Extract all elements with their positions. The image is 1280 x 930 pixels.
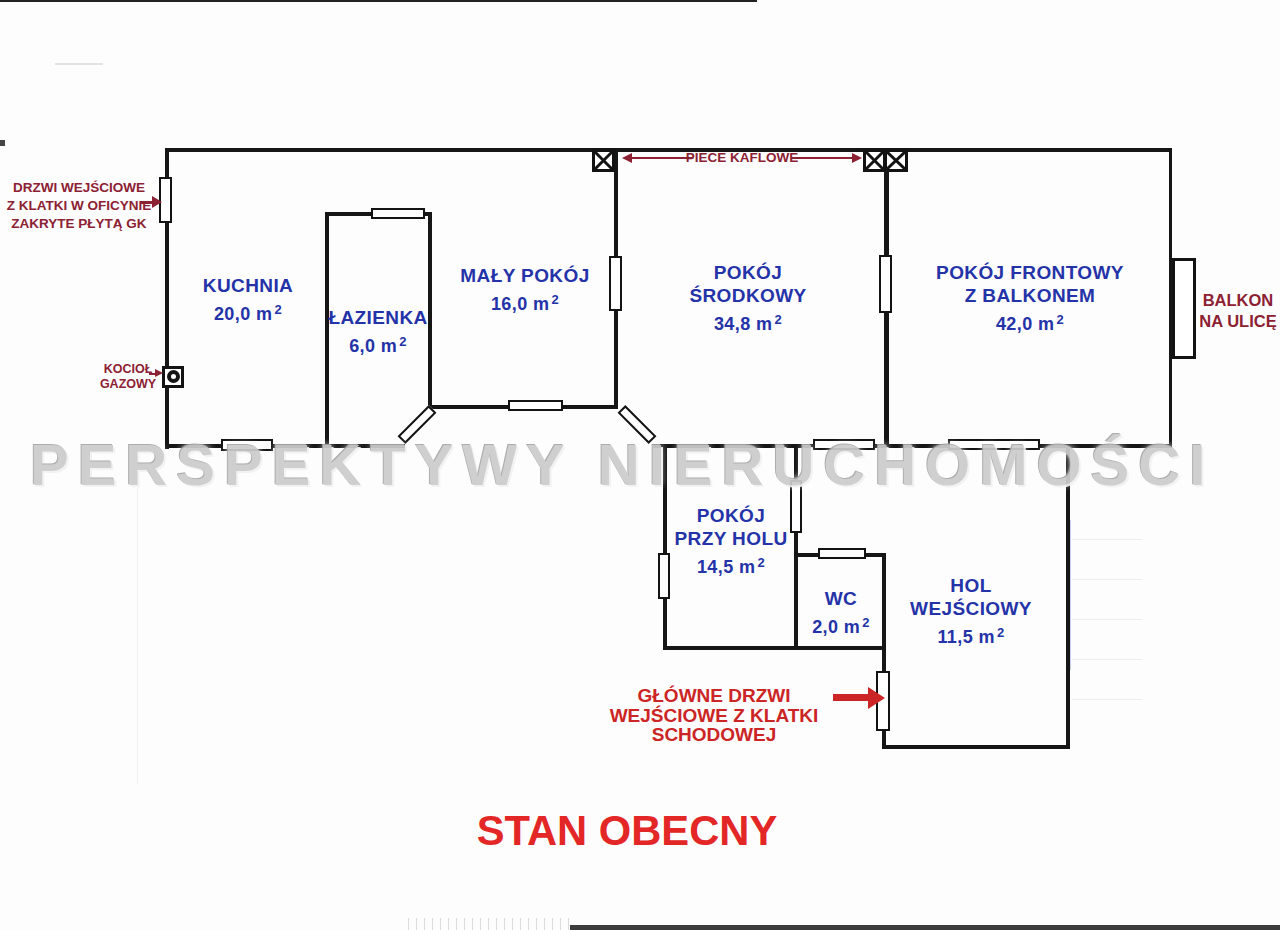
room-area-sup: 2	[774, 312, 782, 327]
room-area: 6,0 m2	[298, 329, 458, 359]
room-area-value: 16,0 m	[491, 294, 549, 314]
scan-artifact-ruling-lines	[1072, 500, 1142, 730]
annotation-balcony: BALKON NA ULICĘ	[1194, 290, 1280, 332]
room-area-sup: 2	[1056, 312, 1064, 327]
room-area-value: 20,0 m	[214, 304, 272, 324]
window-small-room	[508, 400, 563, 411]
gas-boiler-icon	[162, 366, 184, 388]
room-area-sup: 2	[274, 302, 282, 317]
room-name: Z BALKONEM	[930, 284, 1130, 307]
room-label-hol-wejsciowy: HOL WEJŚCIOWY 11,5 m2	[876, 574, 1066, 650]
room-label-pokoj-przy-holu: POKÓJ PRZY HOLU 14,5 m2	[641, 504, 821, 580]
room-area-sup: 2	[551, 292, 559, 307]
gas-boiler-arrowhead-icon	[155, 369, 163, 377]
room-name: ŚRODKOWY	[658, 284, 838, 307]
balcony-outline	[1172, 258, 1196, 359]
room-area-value: 6,0 m	[349, 336, 397, 356]
room-name: MAŁY POKÓJ	[435, 264, 615, 287]
room-name: POKÓJ	[658, 261, 838, 284]
side-entrance-arrowhead-icon	[152, 196, 162, 208]
annotation-line: ZAKRYTE PŁYTĄ GK	[5, 215, 153, 233]
room-area: 16,0 m2	[435, 287, 615, 317]
room-area: 11,5 m2	[876, 620, 1066, 650]
room-area: 34,8 m2	[658, 307, 838, 337]
room-area-sup: 2	[997, 625, 1005, 640]
tile-stoves-right-arrowhead-icon	[852, 153, 862, 163]
room-label-maly-pokoj: MAŁY POKÓJ 16,0 m2	[435, 264, 615, 317]
room-area-value: 11,5 m	[937, 627, 994, 647]
annotation-line: BALKON	[1194, 290, 1280, 311]
room-label-lazienka: ŁAZIENKA 6,0 m2	[298, 306, 458, 359]
annotation-line: DRZWI WEJŚCIOWE	[5, 179, 153, 197]
room-name: ŁAZIENKA	[298, 306, 458, 329]
room-name: HOL	[876, 574, 1066, 597]
tile-stove-icon	[884, 149, 908, 172]
annotation-gas-boiler: KOCIOŁ GAZOWY	[98, 362, 158, 391]
room-name: POKÓJ FRONTOWY	[930, 261, 1130, 284]
main-entrance-arrowhead-icon	[868, 687, 885, 709]
niche-middle-front-wall	[879, 255, 892, 313]
wall-hall-room-bottom	[663, 646, 886, 650]
scan-artifact-bottom-line	[570, 925, 1280, 930]
scan-artifact-bottom-ticks	[408, 918, 573, 930]
room-area: 42,0 m2	[930, 307, 1130, 337]
room-name: PRZY HOLU	[641, 527, 821, 550]
room-name: WEJŚCIOWY	[876, 597, 1066, 620]
main-entrance-arrow	[833, 694, 869, 701]
scan-artifact-top-line	[0, 0, 757, 2]
room-label-pokoj-srodkowy: POKÓJ ŚRODKOWY 34,8 m2	[658, 261, 838, 337]
floor-plan-canvas: KUCHNIA 20,0 m2 ŁAZIENKA 6,0 m2 MAŁY POK…	[0, 0, 1280, 930]
annotation-side-entrance: DRZWI WEJŚCIOWE Z KLATKI W OFICYNIE ZAKR…	[5, 179, 153, 234]
tile-stove-icon	[863, 149, 886, 172]
room-label-pokoj-frontowy: POKÓJ FRONTOWY Z BALKONEM 42,0 m2	[930, 261, 1130, 337]
annotation-main-entrance: GŁÓWNE DRZWI WEJŚCIOWE Z KLATKI SCHODOWE…	[595, 686, 833, 745]
room-area-sup: 2	[757, 555, 765, 570]
page-title: STAN OBECNY	[467, 806, 787, 855]
wall-hall-bottom	[882, 745, 1070, 749]
room-area-value: 34,8 m	[714, 314, 772, 334]
annotation-line: NA ULICĘ	[1194, 311, 1280, 332]
room-area-value: 14,5 m	[697, 557, 755, 577]
room-area-value: 2,0 m	[812, 617, 860, 637]
annotation-line: Z KLATKI W OFICYNIE	[5, 197, 153, 215]
scan-artifact-smudge	[55, 63, 103, 65]
room-name: KUCHNIA	[163, 274, 333, 297]
room-area: 14,5 m2	[641, 550, 821, 580]
room-name: POKÓJ	[641, 504, 821, 527]
room-area-value: 42,0 m	[996, 314, 1054, 334]
room-area-sup: 2	[862, 615, 870, 630]
annotation-line: GAZOWY	[98, 377, 158, 392]
tile-stoves-left-arrow	[631, 157, 693, 159]
door-wc	[818, 548, 866, 559]
window-bathroom	[371, 208, 425, 219]
gas-boiler-burner-icon	[167, 370, 180, 383]
tile-stove-icon	[592, 149, 615, 172]
scan-artifact-left-vline	[137, 485, 138, 785]
scan-artifact-left-nub	[0, 140, 5, 146]
tile-stoves-right-arrow	[791, 157, 853, 159]
watermark-text: PERSPEKTYWY NIERUCHOMOŚCI	[30, 431, 1214, 498]
room-area-sup: 2	[399, 334, 407, 349]
